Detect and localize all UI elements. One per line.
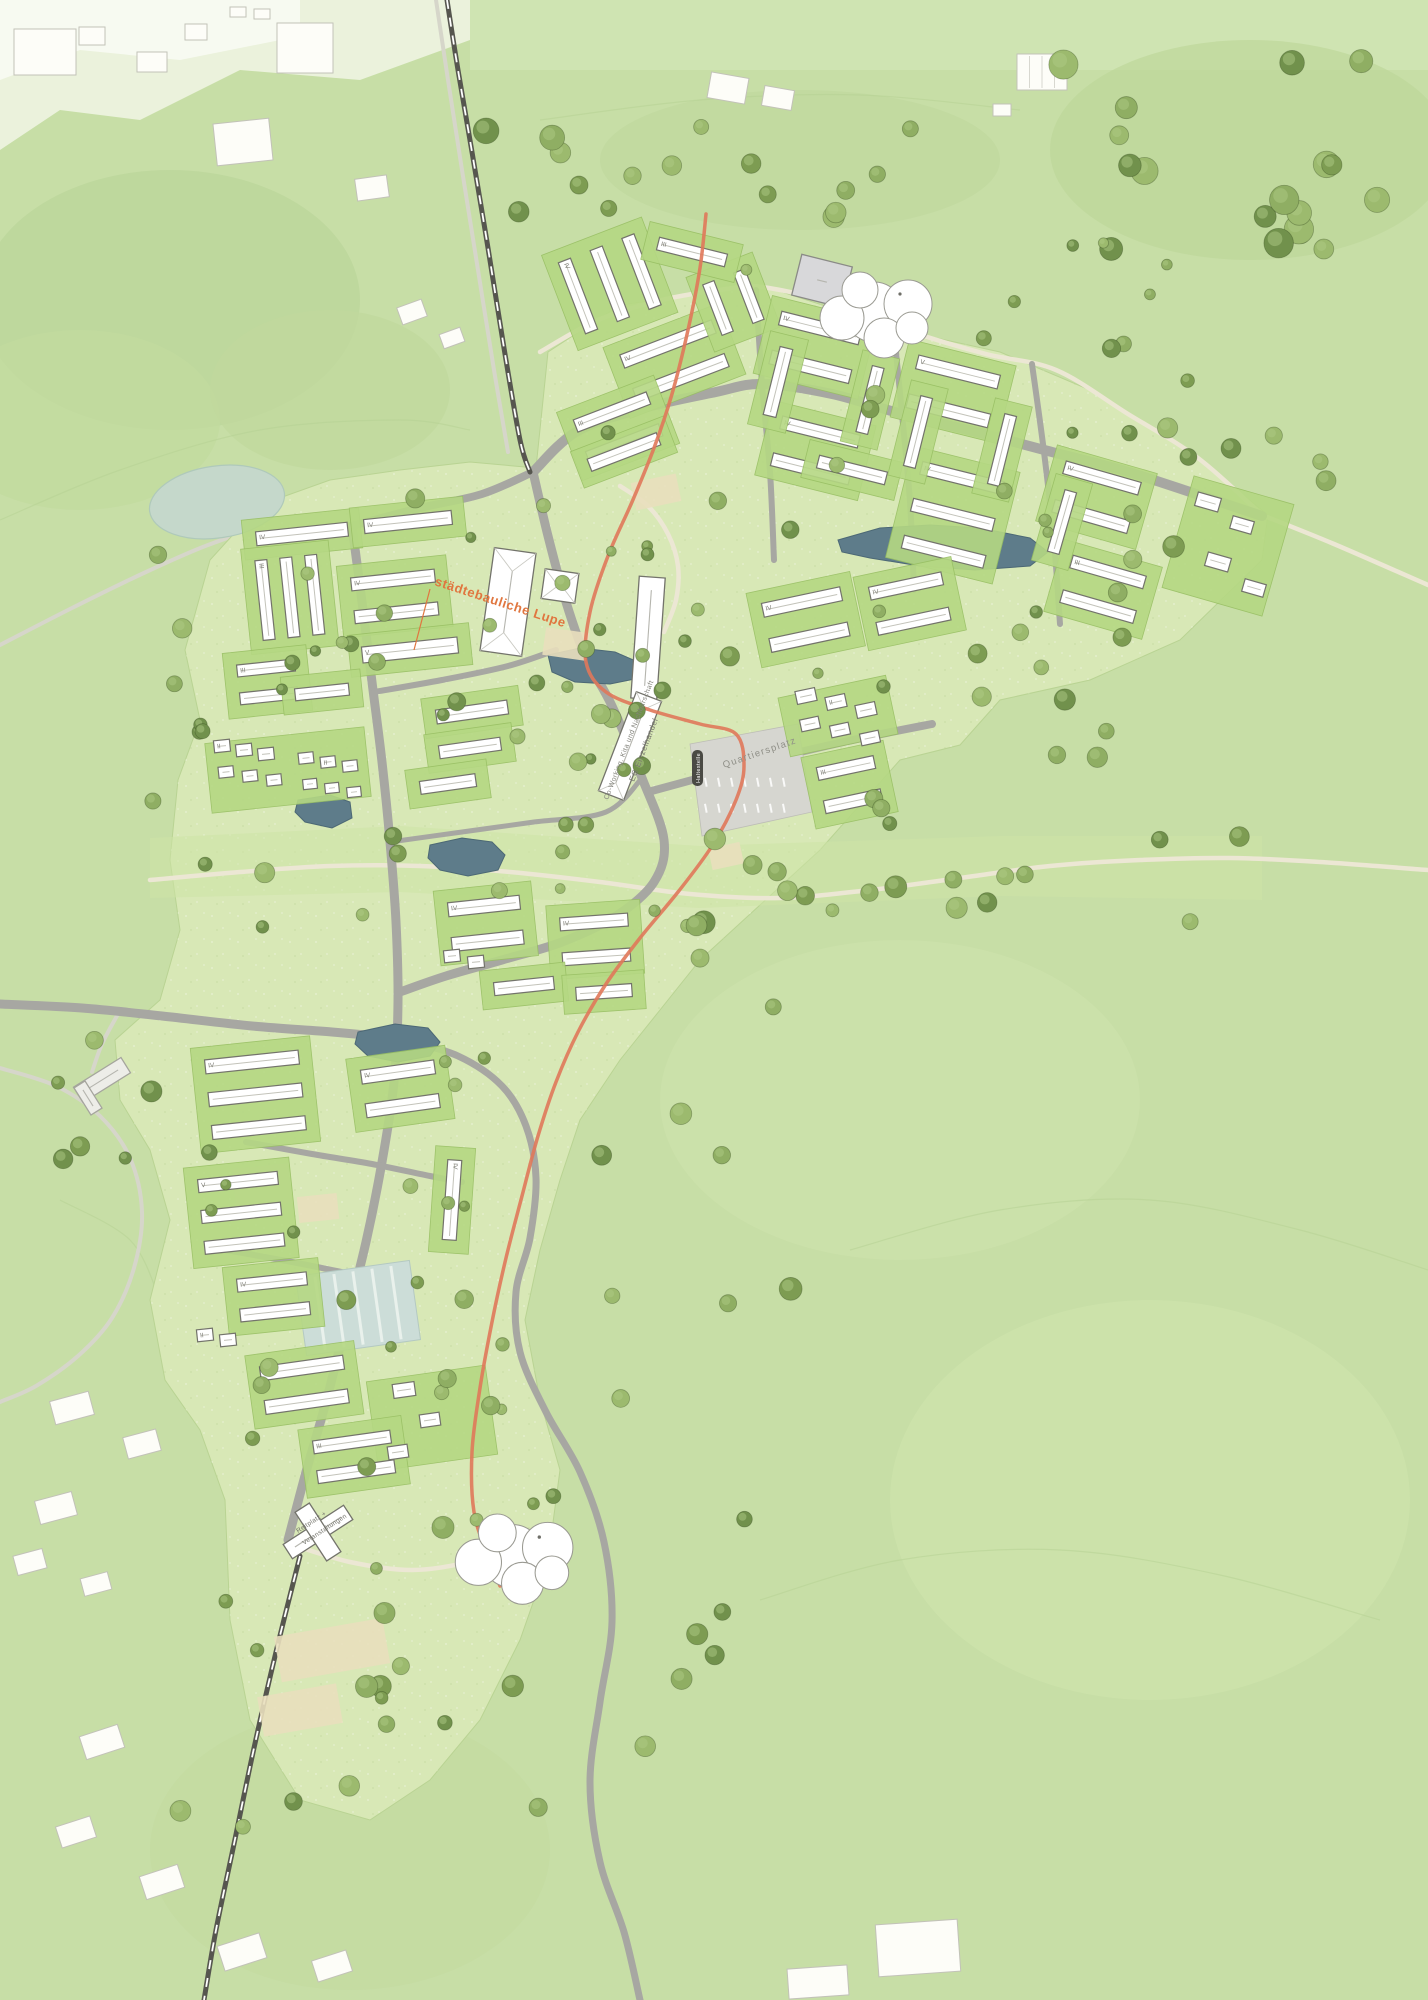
svg-text:IV: IV bbox=[451, 1163, 458, 1170]
bus-stop-marker: Haltestelle bbox=[692, 750, 703, 786]
svg-text:III: III bbox=[240, 667, 246, 675]
bus-stop-label: Haltestelle bbox=[696, 753, 702, 783]
svg-text:IV: IV bbox=[563, 920, 570, 927]
svg-text:III: III bbox=[257, 563, 265, 569]
masterplan-map: IVIVIIIIVIVVIVIVIIIIIIIVIVIIIIVVIIIIVIVI… bbox=[0, 0, 1428, 2000]
masterplan-svg: IVIVIIIIVIVVIVIVIIIIIIIVIVIIIIVVIIIIVIVI… bbox=[0, 0, 1428, 2000]
